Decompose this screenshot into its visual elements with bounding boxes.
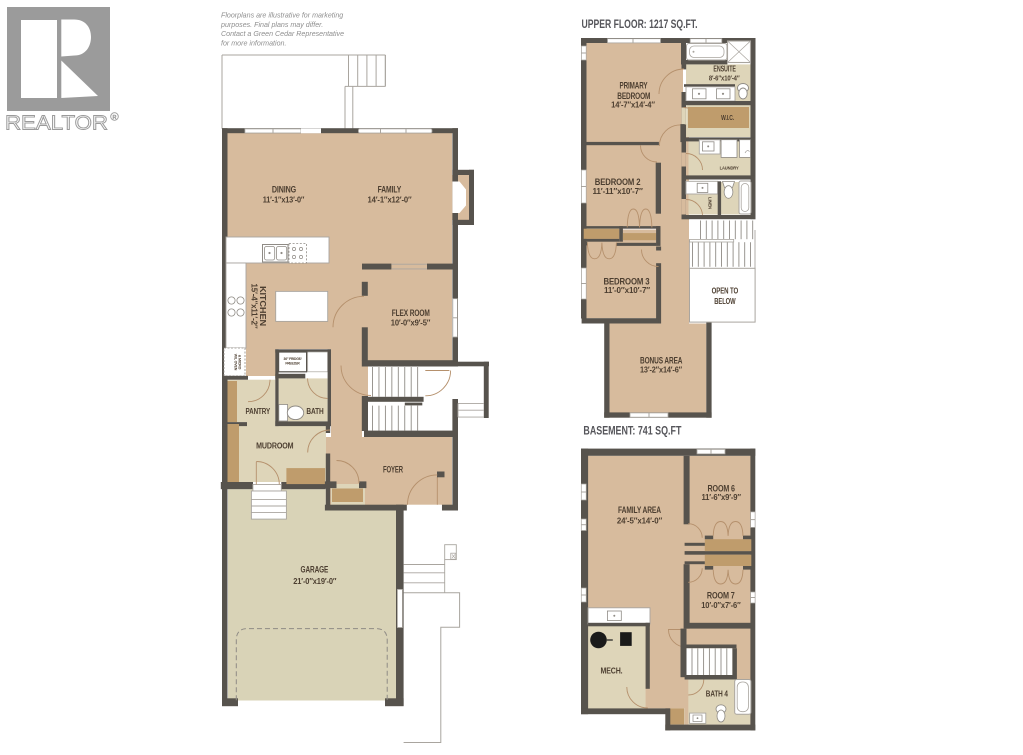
svg-text:FREEZER: FREEZER <box>285 362 300 366</box>
svg-text:& MICRO: & MICRO <box>238 355 242 370</box>
svg-text:BEDROOM 2: BEDROOM 2 <box>595 177 641 187</box>
svg-text:UPPER FLOOR: 1217 SQ.FT.: UPPER FLOOR: 1217 SQ.FT. <box>582 17 698 31</box>
svg-text:PRIMARY: PRIMARY <box>620 81 648 91</box>
svg-text:REALTOR: REALTOR <box>5 112 108 135</box>
svg-text:ENSUITE: ENSUITE <box>713 65 736 74</box>
svg-text:FAMILY: FAMILY <box>378 185 402 195</box>
svg-text:LINEN: LINEN <box>708 197 713 209</box>
svg-text:FOYER: FOYER <box>383 464 404 474</box>
svg-text:36″ FRIDGE/: 36″ FRIDGE/ <box>284 357 302 361</box>
svg-text:PANTRY: PANTRY <box>246 406 271 416</box>
svg-text:BATH 4: BATH 4 <box>706 688 728 698</box>
svg-text:Floorplans are illustrative fo: Floorplans are illustrative for marketin… <box>221 12 343 20</box>
svg-text:DINING: DINING <box>272 185 296 195</box>
svg-text:BEDROOM: BEDROOM <box>617 91 650 101</box>
svg-text:13′-2″x14′-6″: 13′-2″x14′-6″ <box>640 366 682 375</box>
svg-text:MECH.: MECH. <box>601 665 623 675</box>
svg-text:11′-1″x13′-0″: 11′-1″x13′-0″ <box>263 195 305 204</box>
svg-text:for more information.: for more information. <box>221 39 286 47</box>
svg-text:14′-1″x12′-0″: 14′-1″x12′-0″ <box>368 195 412 204</box>
svg-text:MUDROOM: MUDROOM <box>256 441 293 451</box>
svg-text:24′-5″x14′-0″: 24′-5″x14′-0″ <box>617 516 663 525</box>
svg-text:purposes. Final plans may diff: purposes. Final plans may differ. <box>220 21 323 29</box>
svg-text:BONUS AREA: BONUS AREA <box>640 355 683 365</box>
svg-text:11′-6″x9′-9″: 11′-6″x9′-9″ <box>702 493 742 502</box>
svg-text:OPEN TO: OPEN TO <box>712 286 739 296</box>
svg-text:BASEMENT: 741 SQ.FT: BASEMENT: 741 SQ.FT <box>583 423 682 437</box>
svg-text:8′-6″x10′-4″: 8′-6″x10′-4″ <box>709 74 740 83</box>
svg-text:10′-0″x9′-5″: 10′-0″x9′-5″ <box>391 318 431 327</box>
svg-text:21′-0″x19′-0″: 21′-0″x19′-0″ <box>293 577 336 586</box>
svg-text:10′-0″x7′-6″: 10′-0″x7′-6″ <box>701 601 741 610</box>
svg-text:BATH: BATH <box>306 406 323 416</box>
svg-text:W.I.C.: W.I.C. <box>721 113 734 122</box>
svg-text:FLEX ROOM: FLEX ROOM <box>392 308 430 318</box>
svg-text:R: R <box>113 115 117 121</box>
svg-text:FAMILY AREA: FAMILY AREA <box>618 505 661 515</box>
svg-text:14′-7″x14′-4″: 14′-7″x14′-4″ <box>611 101 655 110</box>
svg-text:BELOW: BELOW <box>714 296 736 306</box>
svg-text:11′-11″x10′-7″: 11′-11″x10′-7″ <box>593 187 643 196</box>
svg-text:W/L OVEN: W/L OVEN <box>234 354 238 371</box>
svg-text:GARAGE: GARAGE <box>301 565 329 575</box>
svg-text:ROOM 7: ROOM 7 <box>707 591 735 601</box>
svg-text:Contact a Green Cedar Represen: Contact a Green Cedar Representative <box>221 30 344 38</box>
svg-text:11′-0″x10′-7″: 11′-0″x10′-7″ <box>604 286 650 295</box>
svg-text:15′-4″x11′-2″: 15′-4″x11′-2″ <box>250 284 259 329</box>
svg-text:LAUNDRY: LAUNDRY <box>720 165 740 171</box>
